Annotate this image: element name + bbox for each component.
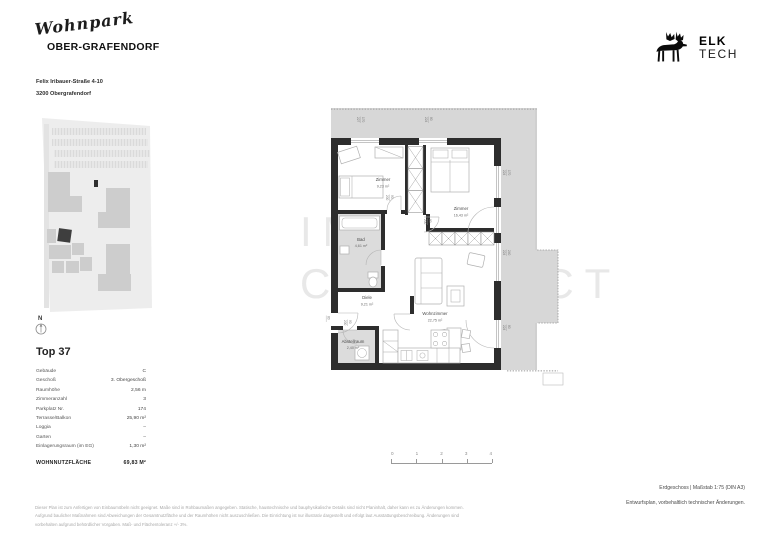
row-value: 1,30 m²: [129, 442, 146, 451]
table-row: Geschoß3. Obergeschoß: [36, 376, 146, 385]
row-label: Parkplatz Nr.: [36, 405, 64, 414]
site-edge-strip: [44, 124, 49, 308]
disclaimer-line: Dieser Plan ist zum Anfertigen von Einba…: [35, 504, 480, 512]
unit-info: Top 37 GebäudeC Geschoß3. Obergeschoß Ra…: [36, 346, 146, 466]
row-value: 2,56 m: [131, 386, 146, 395]
scale-bar: 0 1 2 3 4: [391, 451, 492, 464]
elk-icon: [653, 30, 693, 66]
site-plan: N: [28, 112, 178, 340]
table-row: GebäudeC: [36, 367, 146, 376]
row-label: Zimmeranzahl: [36, 395, 67, 404]
total-value: 69,83 M²: [123, 460, 146, 466]
wardrobe-icon: [408, 147, 423, 213]
disclaimer: Dieser Plan ist zum Anfertigen von Einba…: [35, 504, 480, 529]
dim-label: 200: [423, 219, 427, 225]
scale-bar-line: [391, 459, 492, 464]
plan-info: Erdgeschoss | Maßstab 1:75 (DIN A3): [659, 485, 745, 491]
room-name: Abstellraum: [342, 339, 365, 344]
room-name: Zimmer: [376, 177, 391, 182]
wardrobe-icon: [429, 232, 494, 245]
row-value: –: [143, 433, 146, 442]
logo-sub: TECH: [699, 48, 738, 61]
site-plot: [42, 118, 152, 312]
table-row: Terrasse/Balkon25,90 m²: [36, 414, 146, 423]
room-name: Wohnzimmer: [422, 311, 448, 316]
table-row: Einlagerungsraum (im EG)1,30 m²: [36, 442, 146, 451]
elk-tech-logo: ELK TECH: [653, 30, 738, 66]
table-row: Parkplatz Nr.174: [36, 405, 146, 414]
room-name: Diele: [362, 295, 372, 300]
disclaimer-line: vorbehalten aufgrund behördlicher Vorgab…: [35, 521, 480, 529]
row-label: Gebäude: [36, 367, 56, 376]
dim-label: 240: [507, 250, 511, 256]
floorplan-document-page: Wohnpark OBER-GRAFENDORF Felix Iribauer-…: [0, 0, 770, 544]
room-area: 16,43 m²: [454, 214, 469, 218]
row-label: Loggia: [36, 423, 51, 432]
scale-tick-label: 4: [489, 451, 492, 456]
row-value: 174: [138, 405, 146, 414]
dim-label: 80: [507, 325, 511, 329]
sofa-icon: [415, 258, 442, 304]
unit-title: Top 37: [36, 346, 146, 358]
compass-label: N: [38, 316, 42, 322]
dim-label: 200: [343, 320, 347, 326]
dim-label: 227: [356, 117, 360, 123]
total-label: WOHNNUTZFLÄCHE: [36, 460, 91, 466]
exterior-detail: [543, 373, 563, 385]
elk-logo-text: ELK TECH: [699, 35, 738, 61]
row-value: 25,90 m²: [127, 414, 146, 423]
stove-icon: [431, 330, 449, 348]
table-row: Zimmeranzahl3: [36, 395, 146, 404]
scale-tick-label: 0: [391, 451, 394, 456]
room-name: Zimmer: [454, 206, 469, 211]
room-area: 22,75 m²: [428, 319, 443, 323]
project-address: Felix Iribauer-Straße 4-10 3200 Obergraf…: [36, 76, 103, 100]
disclaimer-line: Aufgrund baulicher Maßnahmen sind Abweic…: [35, 512, 480, 520]
table-row: Raumhöhe2,56 m: [36, 386, 146, 395]
plan-note: Entwurfsplan, vorbehaltlich technischer …: [626, 500, 745, 506]
room-area: 2,40 m²: [347, 346, 360, 350]
brand-script: Wohnpark: [34, 5, 159, 39]
row-label: Einlagerungsraum (im EG): [36, 442, 94, 451]
dim-label: 224: [502, 325, 506, 331]
dim-label: 80: [327, 316, 331, 320]
dim-label: 170: [507, 170, 511, 176]
coffee-table-icon: [447, 286, 464, 306]
dim-label: 200: [385, 195, 389, 201]
dim-label: 90: [348, 320, 352, 324]
row-value: 3. Obergeschoß: [111, 376, 146, 385]
bathtub-icon: [340, 216, 380, 230]
double-bed-icon: [431, 148, 469, 192]
row-value: 3: [143, 395, 146, 404]
dim-label: 80: [428, 219, 432, 223]
scale-tick-label: 2: [440, 451, 443, 456]
sink-icon: [340, 246, 349, 254]
row-label: Geschoß: [36, 376, 56, 385]
brand-name: OBER-GRAFENDORF: [47, 41, 159, 53]
scale-tick-label: 3: [465, 451, 468, 456]
project-brand: Wohnpark OBER-GRAFENDORF: [36, 20, 159, 53]
row-value: –: [143, 423, 146, 432]
room-area: 4,61 m²: [355, 244, 368, 248]
north-compass: N: [36, 316, 46, 334]
dim-label: 224: [502, 250, 506, 256]
row-value: C: [142, 367, 146, 376]
toilet-icon: [368, 272, 378, 287]
room-area: 9,23 m²: [377, 185, 390, 189]
floor-plan: Zimmer 9,23 m² Zimmer 16,43 m² Bad 4,61 …: [325, 100, 575, 390]
highlighted-building: [57, 228, 72, 243]
row-label: Raumhöhe: [36, 386, 60, 395]
scale-tick-label: 1: [416, 451, 419, 456]
scale-bar-numbers: 0 1 2 3 4: [391, 451, 492, 456]
dim-label: 90: [390, 195, 394, 199]
dim-label: 224: [424, 117, 428, 123]
address-line2: 3200 Obergrafendorf: [36, 88, 103, 100]
row-label: Garten: [36, 433, 51, 442]
room-area: 9,21 m²: [361, 303, 374, 307]
table-row: Garten–: [36, 433, 146, 442]
address-line1: Felix Iribauer-Straße 4-10: [36, 76, 103, 88]
table-row: Loggia–: [36, 423, 146, 432]
dim-label: 80: [429, 117, 433, 121]
row-label: Terrasse/Balkon: [36, 414, 71, 423]
total-row: WOHNNUTZFLÄCHE 69,83 M²: [36, 460, 146, 466]
site-marker: [94, 180, 98, 187]
room-name: Bad: [357, 237, 365, 242]
dim-label: 170: [361, 117, 365, 123]
dim-label: 224: [502, 170, 506, 176]
